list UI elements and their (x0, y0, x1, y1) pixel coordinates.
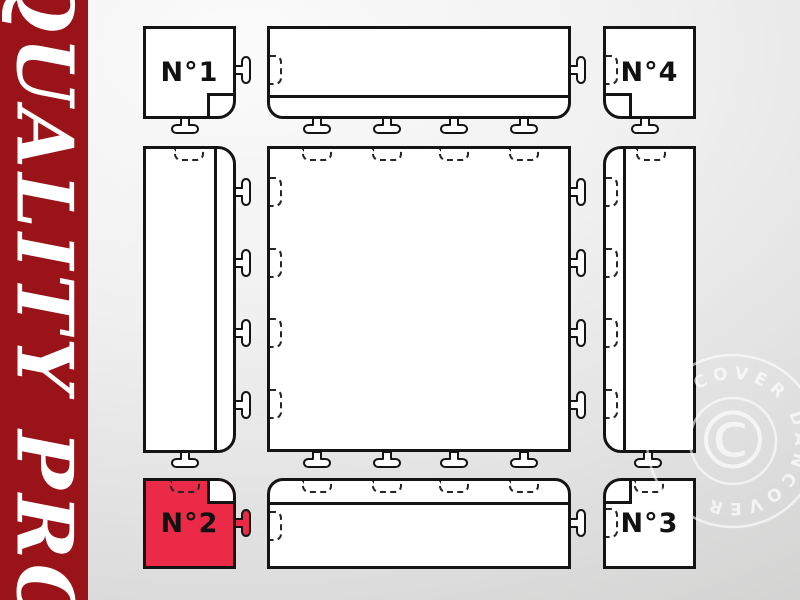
connector-slot (509, 481, 539, 493)
connector-peg-icon (510, 452, 538, 469)
connector-slot (606, 55, 618, 85)
connector-peg-icon (570, 509, 587, 537)
copyright-icon: © (693, 395, 773, 488)
connector-slot (439, 149, 469, 161)
connector-slot (174, 149, 204, 161)
tile-label-n4: N°4 (621, 57, 679, 88)
connector-slot (270, 318, 282, 348)
connector-slot (634, 481, 664, 493)
connector-peg-icon (570, 56, 587, 84)
connector-peg-icon (373, 452, 401, 469)
connector-peg-icon (235, 319, 252, 347)
corner-notch (207, 93, 233, 116)
connector-peg-icon (235, 249, 252, 277)
connector-slot (270, 511, 282, 541)
connector-slot (606, 508, 618, 538)
connector-slot (302, 481, 332, 493)
connector-peg-icon (235, 56, 252, 84)
connector-peg-icon (570, 178, 587, 206)
connector-peg-icon (171, 452, 199, 469)
quality-pro-banner: QUALITY PRO (0, 0, 88, 600)
connector-peg-icon (510, 118, 538, 135)
banner-text: QUALITY PRO (0, 0, 90, 600)
tile-corner-1: N°1 (143, 26, 236, 119)
connector-slot (302, 149, 332, 161)
connector-slot (270, 177, 282, 207)
corner-notch (606, 93, 632, 116)
tile-center (267, 146, 571, 452)
connector-slot (606, 248, 618, 278)
connector-peg-icon (440, 452, 468, 469)
connector-peg-icon (373, 118, 401, 135)
connector-peg-icon (235, 391, 252, 419)
ramp-divider-line (214, 149, 217, 450)
connector-slot (509, 149, 539, 161)
connector-slot (270, 248, 282, 278)
tile-label-n2: N°2 (161, 508, 219, 539)
corner-notch (207, 481, 233, 504)
connector-peg-icon (235, 178, 252, 206)
ramp-divider-line (270, 95, 568, 98)
connector-slot (170, 481, 200, 493)
connector-peg-icon (570, 391, 587, 419)
connector-slot (372, 481, 402, 493)
connector-peg-icon (634, 452, 662, 469)
connector-peg-icon (303, 118, 331, 135)
connector-slot (372, 149, 402, 161)
corner-notch (606, 481, 632, 504)
connector-slot (439, 481, 469, 493)
connector-peg-icon (570, 249, 587, 277)
connector-slot (636, 149, 666, 161)
ramp-divider-line (270, 502, 568, 505)
connector-slot (270, 389, 282, 419)
tile-edge-left (143, 146, 236, 453)
connector-peg-icon (440, 118, 468, 135)
connector-peg-icon (171, 118, 199, 135)
connector-peg-icon (235, 509, 252, 537)
connector-peg-icon (570, 319, 587, 347)
connector-peg-icon (631, 118, 659, 135)
product-assembly-diagram: QUALITY PRO N°1 N°4 N°2 N°3 (0, 0, 800, 600)
connector-peg-icon (303, 452, 331, 469)
connector-slot (606, 177, 618, 207)
ramp-divider-line (623, 149, 626, 450)
tile-label-n3: N°3 (621, 508, 679, 539)
connector-slot (606, 389, 618, 419)
connector-slot (606, 318, 618, 348)
tile-edge-top (267, 26, 571, 119)
connector-slot (270, 55, 282, 85)
tile-label-n1: N°1 (161, 57, 219, 88)
